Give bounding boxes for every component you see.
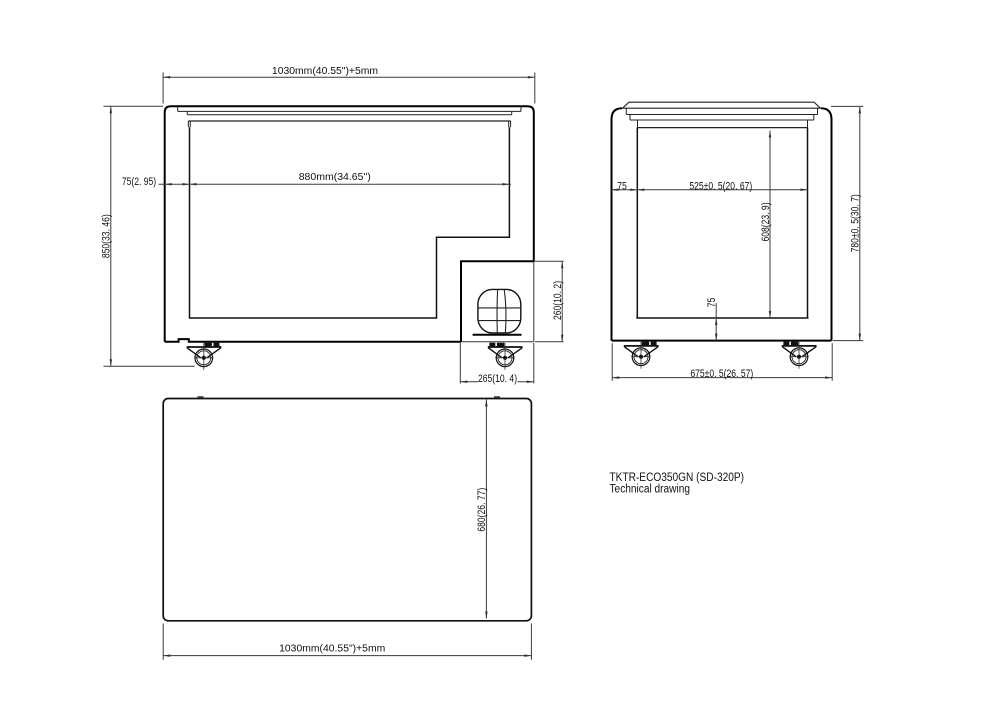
svg-text:880mm(34.65"): 880mm(34.65") — [299, 171, 371, 183]
svg-text:1030mm(40.55")+5mm: 1030mm(40.55")+5mm — [272, 66, 378, 77]
svg-text:680(26. 77): 680(26. 77) — [476, 488, 488, 532]
svg-text:260(10. 2): 260(10. 2) — [552, 281, 564, 320]
svg-text:675±0. 5(26. 57): 675±0. 5(26. 57) — [690, 368, 753, 380]
svg-text:75(2. 95): 75(2. 95) — [122, 176, 156, 188]
svg-text:608(23. 9): 608(23. 9) — [760, 202, 772, 241]
svg-text:780±0. 5(30. 7): 780±0. 5(30. 7) — [850, 194, 862, 252]
svg-text:1030mm(40.55")+5mm: 1030mm(40.55")+5mm — [279, 643, 385, 654]
svg-text:850(33. 46): 850(33. 46) — [101, 214, 113, 258]
svg-text:75: 75 — [706, 297, 718, 307]
svg-text:75: 75 — [617, 180, 627, 192]
svg-text:265(10. 4): 265(10. 4) — [478, 373, 517, 385]
svg-text:Technical drawing: Technical drawing — [610, 483, 690, 496]
svg-text:525±0. 5(20. 67): 525±0. 5(20. 67) — [689, 180, 752, 192]
